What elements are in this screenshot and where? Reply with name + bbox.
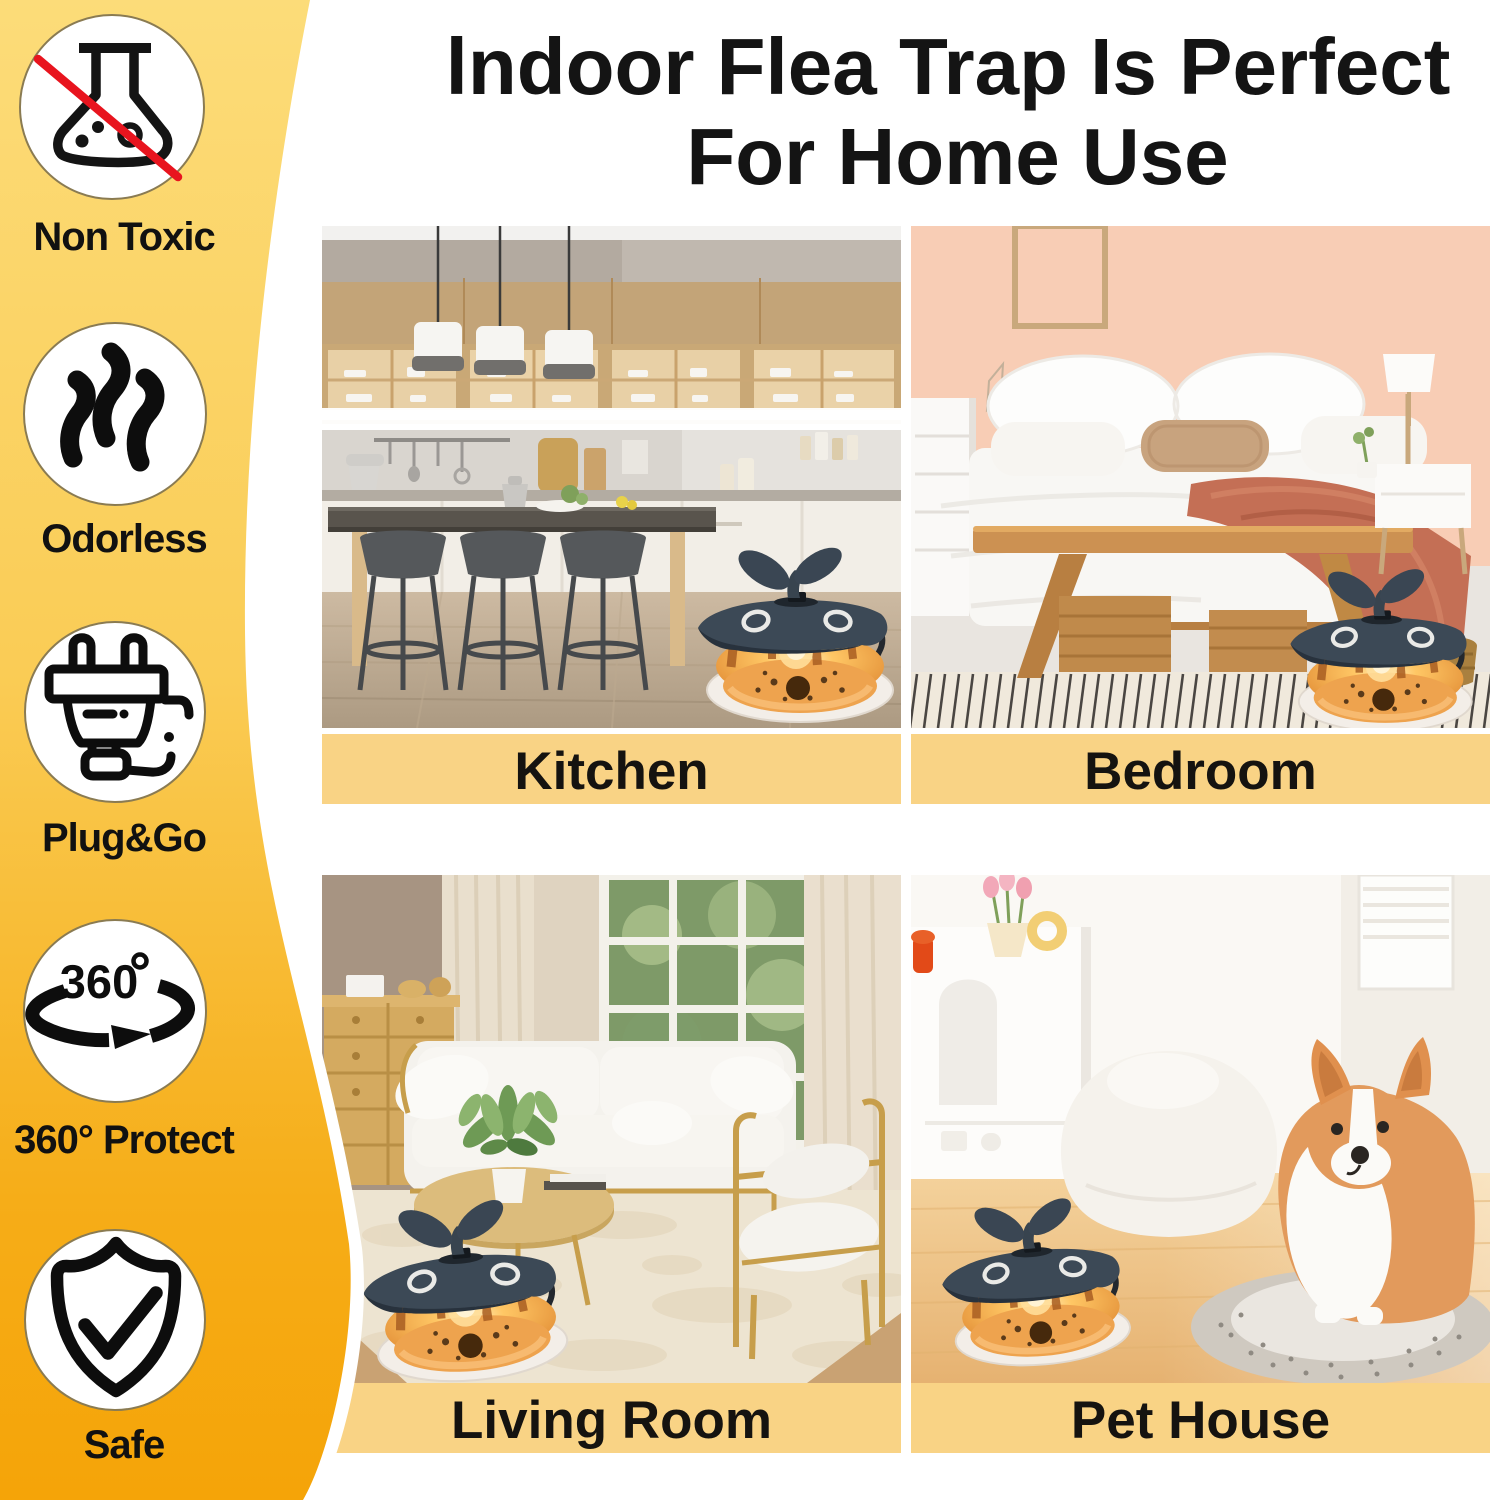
svg-text:360: 360 bbox=[60, 955, 138, 1008]
svg-text:Odorless: Odorless bbox=[41, 517, 206, 561]
svg-text:Plug&Go: Plug&Go bbox=[42, 816, 206, 860]
svg-text:Safe: Safe bbox=[84, 1423, 165, 1467]
svg-text:Non Toxic: Non Toxic bbox=[33, 215, 215, 259]
svg-text:360° Protect: 360° Protect bbox=[14, 1118, 234, 1162]
